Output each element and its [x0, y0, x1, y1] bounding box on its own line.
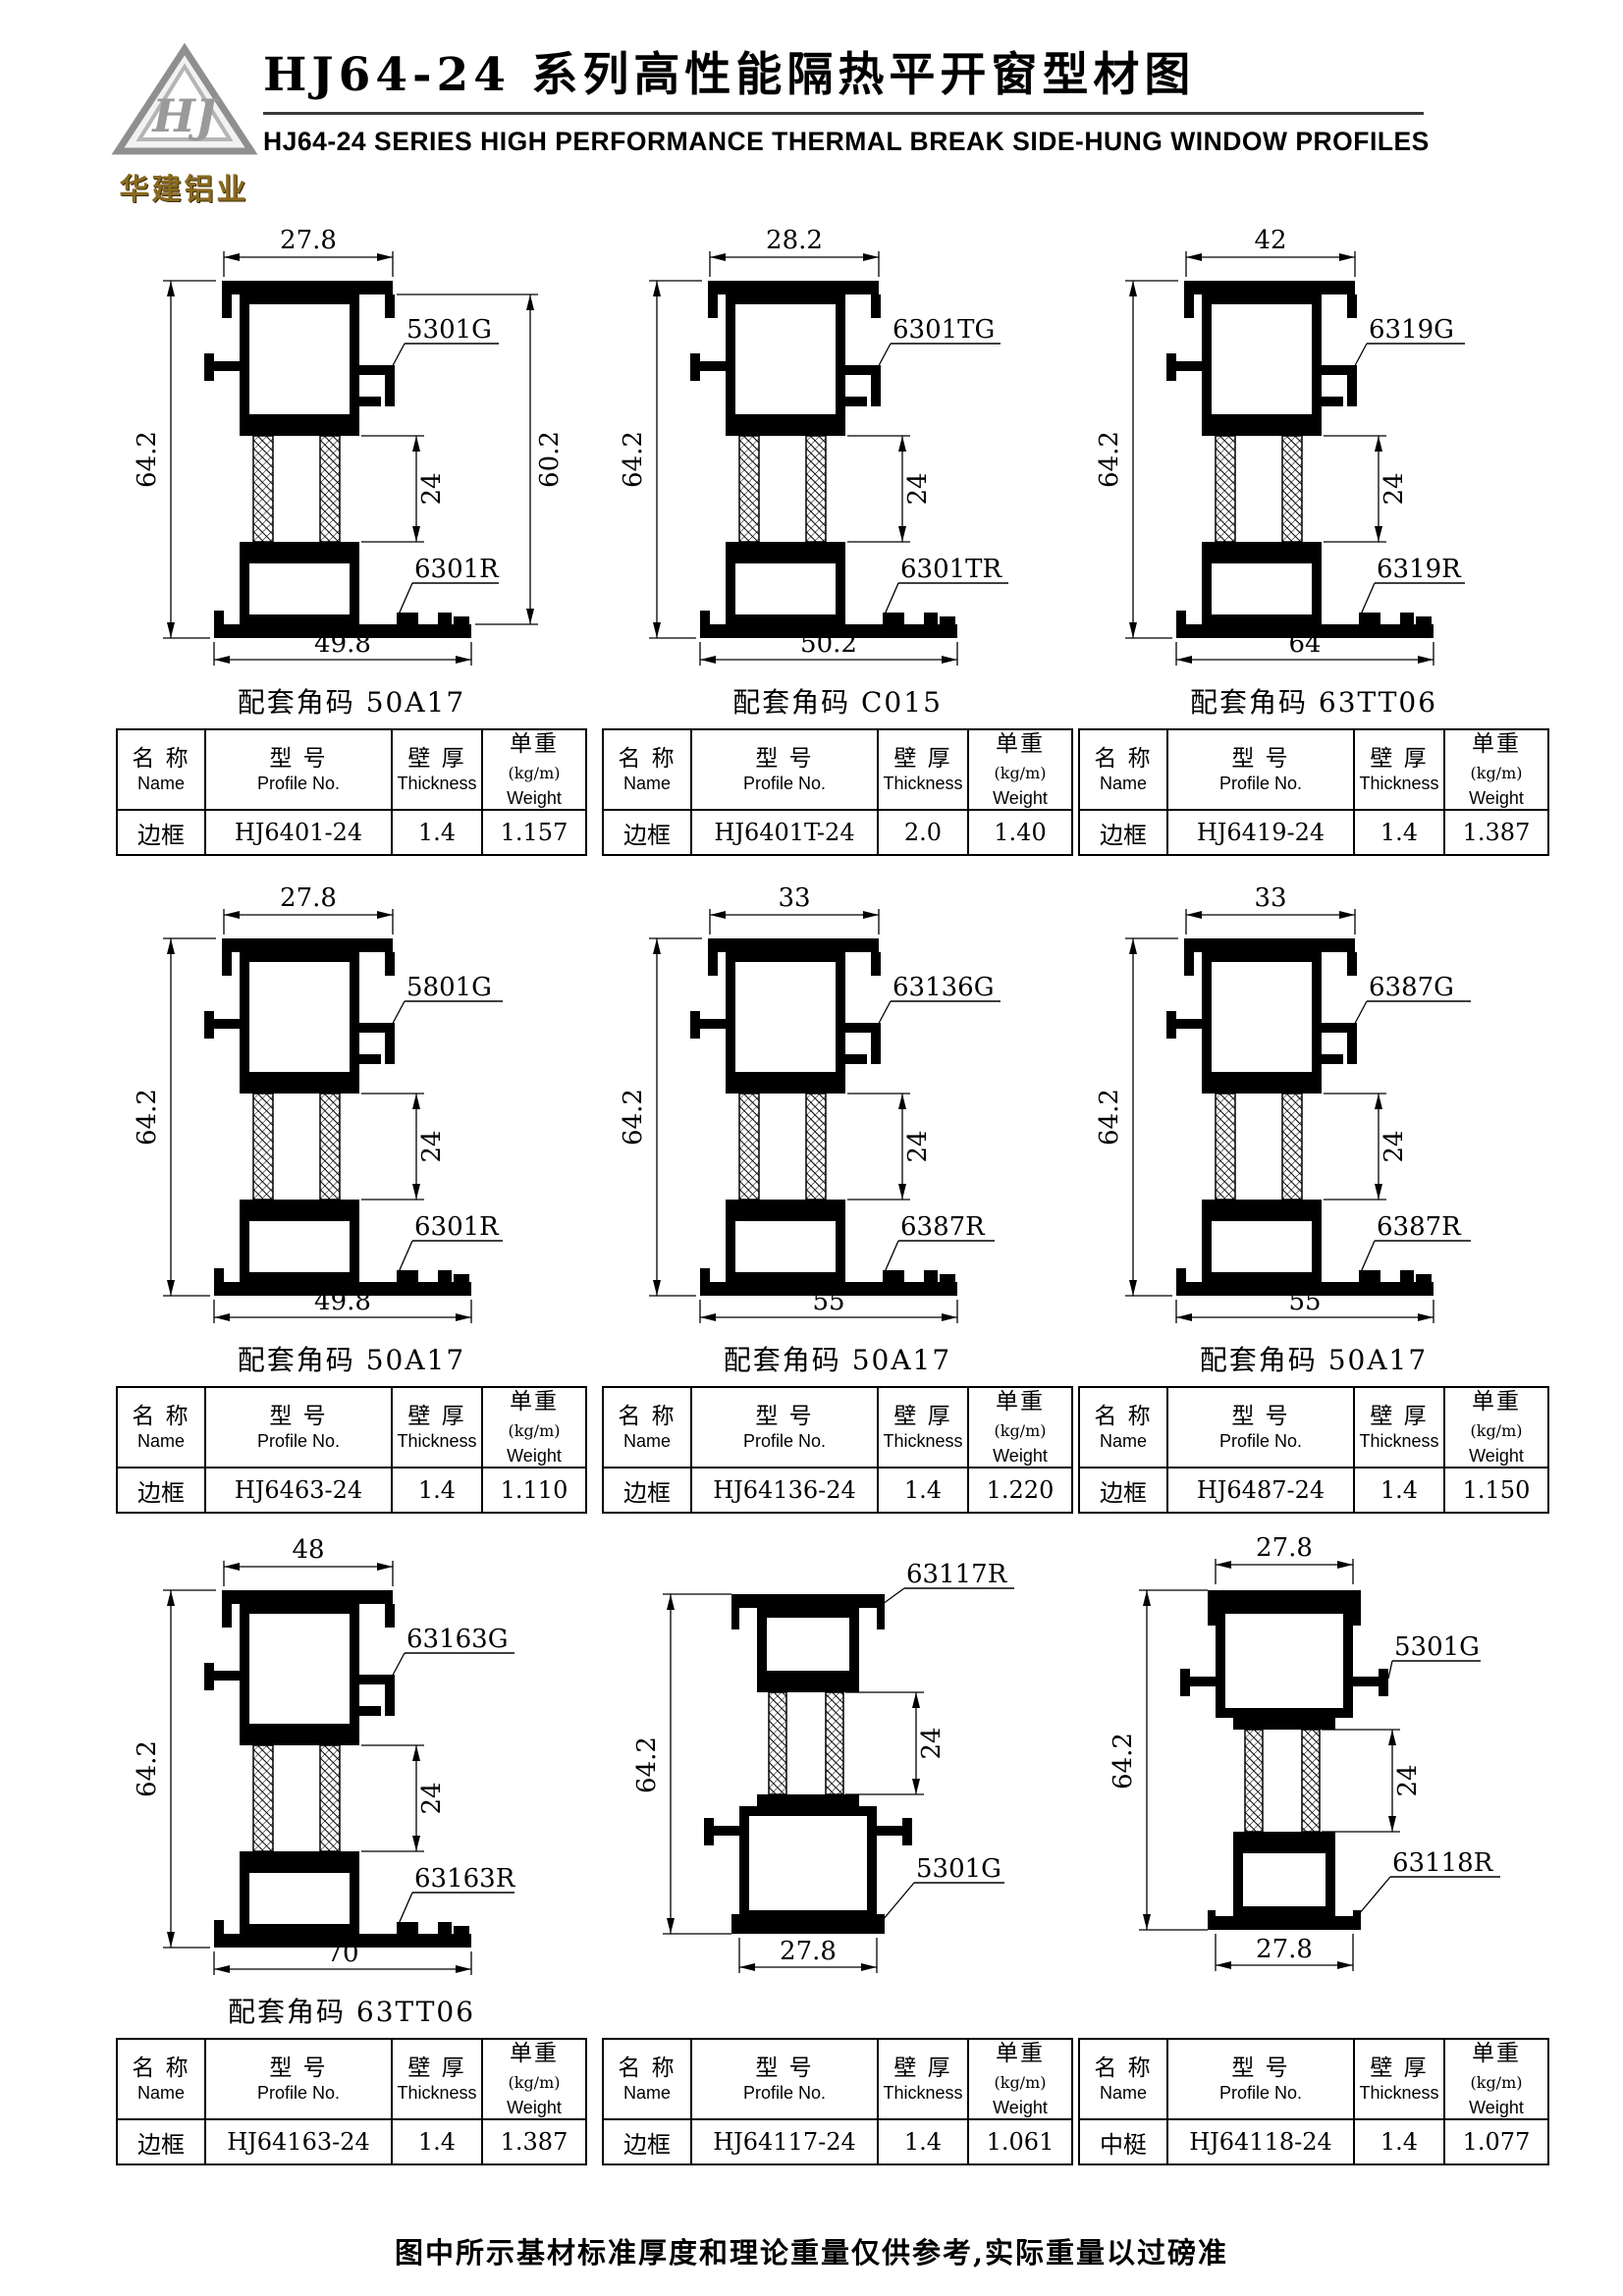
cell-model: HJ64118-24	[1167, 2119, 1354, 2164]
profile-drawing: 28.2 64.2 24 50.2 6301TG 6301TR	[592, 222, 1083, 683]
col-header-model: 型 号Profile No.	[1167, 1387, 1354, 1468]
cell-thickness: 1.4	[392, 2119, 482, 2164]
document-page: HJ 华建铝业 HJ64-24 系列高性能隔热平开窗型材图 HJ64-24 SE…	[0, 0, 1623, 2296]
col-header-weight: 单重(kg/m)Weight	[1444, 729, 1548, 810]
col-header-thickness: 壁 厚Thickness	[392, 1387, 482, 1468]
dim-left: 64.2	[1109, 1733, 1138, 1789]
profile-drawing: 27.8 64.2 60.2 24 49.8 5301G 6301R	[106, 222, 597, 683]
corner-code-caption: 配套角码 63TT06	[1063, 683, 1564, 722]
label-upper: 5301G	[406, 315, 492, 345]
cell-weight: 1.387	[482, 2119, 586, 2164]
cell-name: 边框	[603, 810, 691, 855]
dim-bottom: 50.2	[800, 629, 857, 659]
col-header-weight: 单重(kg/m)Weight	[968, 2039, 1072, 2119]
col-header-model: 型 号Profile No.	[1167, 729, 1354, 810]
col-header-weight: 单重(kg/m)Weight	[482, 729, 586, 810]
dim-left: 64.2	[1095, 1089, 1124, 1146]
dim-left: 64.2	[133, 431, 162, 488]
cell-model: HJ6401T-24	[691, 810, 878, 855]
company-logo: HJ 华建铝业	[93, 41, 275, 208]
dim-top: 42	[1254, 226, 1286, 255]
label-upper: 5801G	[406, 973, 492, 1002]
col-header-thickness: 壁 厚Thickness	[1354, 1387, 1444, 1468]
corner-code-caption: 配套角码 63TT06	[101, 1993, 602, 2032]
cell-model: HJ64117-24	[691, 2119, 878, 2164]
dim-left: 64.2	[632, 1736, 662, 1793]
col-header-weight: 单重(kg/m)Weight	[482, 1387, 586, 1468]
col-header-thickness: 壁 厚Thickness	[878, 1387, 968, 1468]
spec-table: 名 称Name 型 号Profile No. 壁 厚Thickness 单重(k…	[1078, 728, 1549, 856]
dim-bottom: 49.8	[314, 629, 371, 659]
table-row: 边框 HJ64117-24 1.4 1.061	[603, 2119, 1072, 2164]
cell-name: 边框	[117, 2119, 205, 2164]
spec-table: 名 称Name 型 号Profile No. 壁 厚Thickness 单重(k…	[602, 1386, 1073, 1514]
label-upper: 5301G	[1394, 1632, 1480, 1662]
logo-triangle-icon: HJ	[106, 41, 263, 159]
col-header-name: 名 称Name	[603, 1387, 691, 1468]
col-header-thickness: 壁 厚Thickness	[1354, 2039, 1444, 2119]
cell-thickness: 1.4	[1354, 810, 1444, 855]
dim-mid: 24	[417, 472, 447, 505]
cell-weight: 1.387	[1444, 810, 1548, 855]
col-header-weight: 单重(kg/m)Weight	[968, 729, 1072, 810]
label-lower: 6319R	[1377, 555, 1462, 584]
header: HJ64-24 系列高性能隔热平开窗型材图 HJ64-24 SERIES HIG…	[263, 49, 1424, 157]
label-upper: 63117R	[906, 1560, 1008, 1589]
dim-left: 64.2	[619, 431, 648, 488]
profile-drawing: 42 64.2 24 64 6319G 6319R	[1068, 222, 1559, 683]
dim-bottom: 27.8	[780, 1937, 837, 1966]
col-header-thickness: 壁 厚Thickness	[392, 2039, 482, 2119]
cell-weight: 1.40	[968, 810, 1072, 855]
dim-top: 33	[778, 883, 810, 913]
dim-top: 33	[1254, 883, 1286, 913]
dim-mid: 24	[1393, 1764, 1423, 1796]
corner-code-caption: 配套角码 50A17	[101, 1341, 602, 1380]
col-header-model: 型 号Profile No.	[205, 2039, 392, 2119]
cell-name: 边框	[117, 810, 205, 855]
dim-bottom: 49.8	[314, 1287, 371, 1316]
label-upper: 6301TG	[893, 315, 995, 345]
company-name: 华建铝业	[93, 165, 275, 208]
col-header-thickness: 壁 厚Thickness	[878, 729, 968, 810]
table-row: 边框 HJ6401T-24 2.0 1.40	[603, 810, 1072, 855]
col-header-weight: 单重(kg/m)Weight	[482, 2039, 586, 2119]
cell-model: HJ64163-24	[205, 2119, 392, 2164]
profile-card: 48 64.2 24 70 63163G 63163R 配套角码 63TT06	[101, 1531, 602, 2165]
label-lower: 63163R	[414, 1864, 516, 1894]
cell-weight: 1.220	[968, 1468, 1072, 1513]
table-row: 边框 HJ6463-24 1.4 1.110	[117, 1468, 586, 1513]
col-header-thickness: 壁 厚Thickness	[392, 729, 482, 810]
spec-table: 名 称Name 型 号Profile No. 壁 厚Thickness 单重(k…	[116, 728, 587, 856]
label-lower: 5301G	[916, 1854, 1001, 1884]
profile-drawing: 27.8 64.2 24 49.8 5801G 6301R	[106, 880, 597, 1341]
part-labels: 6387G 6387R	[1351, 973, 1471, 1272]
profile-card: 33 64.2 24 55 6387G 6387R 配套角码 50A17 名	[1063, 880, 1564, 1514]
col-header-model: 型 号Profile No.	[691, 729, 878, 810]
label-lower: 6301R	[414, 1212, 500, 1242]
dim-top: 27.8	[1256, 1533, 1313, 1563]
cell-model: HJ6463-24	[205, 1468, 392, 1513]
part-labels: 5801G 6301R	[389, 973, 503, 1272]
profile-drawing: 33 64.2 24 55 6387G 6387R	[1068, 880, 1559, 1341]
col-header-name: 名 称Name	[1079, 1387, 1167, 1468]
col-header-name: 名 称Name	[117, 2039, 205, 2119]
table-row: 边框 HJ6487-24 1.4 1.150	[1079, 1468, 1548, 1513]
part-labels: 6319G 6319R	[1351, 315, 1465, 614]
spec-table: 名 称Name 型 号Profile No. 壁 厚Thickness 单重(k…	[602, 2038, 1073, 2165]
dim-top: 27.8	[280, 883, 337, 913]
profile-drawing: 27.8 64.2 24 27.8 5301G 63118R	[1068, 1531, 1559, 1993]
cell-weight: 1.110	[482, 1468, 586, 1513]
col-header-name: 名 称Name	[603, 729, 691, 810]
dim-mid: 24	[903, 472, 933, 505]
col-header-model: 型 号Profile No.	[1167, 2039, 1354, 2119]
spec-table: 名 称Name 型 号Profile No. 壁 厚Thickness 单重(k…	[116, 2038, 587, 2165]
profile-drawing: 64.2 24 27.8 63117R 5301G	[592, 1531, 1083, 1993]
col-header-thickness: 壁 厚Thickness	[878, 2039, 968, 2119]
profile-card: 27.8 64.2 24 27.8 5301G 63118R 名 称Nam	[1063, 1531, 1564, 2165]
profile-drawing: 48 64.2 24 70 63163G 63163R	[106, 1531, 597, 1993]
spec-table: 名 称Name 型 号Profile No. 壁 厚Thickness 单重(k…	[116, 1386, 587, 1514]
dim-top: 28.2	[766, 226, 823, 255]
profile-card: 42 64.2 24 64 6319G 6319R 配套角码 63TT06	[1063, 222, 1564, 856]
cell-thickness: 1.4	[392, 1468, 482, 1513]
cell-name: 边框	[1079, 810, 1167, 855]
cell-name: 边框	[603, 1468, 691, 1513]
col-header-name: 名 称Name	[117, 1387, 205, 1468]
col-header-name: 名 称Name	[117, 729, 205, 810]
cell-model: HJ6419-24	[1167, 810, 1354, 855]
profile-card: 27.8 64.2 24 49.8 5801G 6301R 配套角码 50A17	[101, 880, 602, 1514]
label-upper: 63163G	[406, 1625, 508, 1654]
spec-table: 名 称Name 型 号Profile No. 壁 厚Thickness 单重(k…	[1078, 1386, 1549, 1514]
spec-table: 名 称Name 型 号Profile No. 壁 厚Thickness 单重(k…	[602, 728, 1073, 856]
profile-card: 27.8 64.2 60.2 24 49.8 5301G 6301R	[101, 222, 602, 856]
cell-thickness: 1.4	[1354, 2119, 1444, 2164]
label-upper: 63136G	[893, 973, 994, 1002]
footer-note: 图中所示基材标准厚度和理论重量仅供参考,实际重量以过磅准	[0, 2230, 1623, 2271]
table-row: 边框 HJ6401-24 1.4 1.157	[117, 810, 586, 855]
profile-card: 28.2 64.2 24 50.2 6301TG 6301TR 配套角码 C01…	[587, 222, 1088, 856]
dim-left: 64.2	[1095, 431, 1124, 488]
dim-mid: 24	[917, 1727, 947, 1759]
col-header-model: 型 号Profile No.	[691, 1387, 878, 1468]
label-lower: 6301R	[414, 555, 500, 584]
page-subtitle: HJ64-24 SERIES HIGH PERFORMANCE THERMAL …	[263, 127, 1424, 157]
corner-code-caption: 配套角码 C015	[587, 683, 1088, 722]
dim-left: 64.2	[619, 1089, 648, 1146]
col-header-weight: 单重(kg/m)Weight	[1444, 1387, 1548, 1468]
cell-model: HJ6487-24	[1167, 1468, 1354, 1513]
dim-mid: 24	[1380, 472, 1409, 505]
dim-left: 64.2	[133, 1740, 162, 1797]
corner-code-caption: 配套角码 50A17	[587, 1341, 1088, 1380]
dim-mid: 24	[1380, 1130, 1409, 1162]
col-header-name: 名 称Name	[603, 2039, 691, 2119]
profile-card: 64.2 24 27.8 63117R 5301G 名 称Name 型 号Pro…	[587, 1531, 1088, 2165]
table-row: 边框 HJ6419-24 1.4 1.387	[1079, 810, 1548, 855]
dim-bottom: 64	[1288, 629, 1321, 659]
cell-thickness: 1.4	[878, 1468, 968, 1513]
table-row: 边框 HJ64163-24 1.4 1.387	[117, 2119, 586, 2164]
cell-thickness: 2.0	[878, 810, 968, 855]
cell-weight: 1.150	[1444, 1468, 1548, 1513]
label-upper: 6319G	[1369, 315, 1454, 345]
dim-bottom: 27.8	[1256, 1935, 1313, 1964]
part-labels: 63136G 6387R	[875, 973, 1001, 1272]
col-header-model: 型 号Profile No.	[205, 1387, 392, 1468]
cell-model: HJ64136-24	[691, 1468, 878, 1513]
col-header-name: 名 称Name	[1079, 729, 1167, 810]
dim-bottom: 70	[326, 1939, 358, 1968]
label-lower: 63118R	[1392, 1848, 1494, 1878]
title-divider	[263, 112, 1424, 115]
cell-name: 中梃	[1079, 2119, 1167, 2164]
spec-table: 名 称Name 型 号Profile No. 壁 厚Thickness 单重(k…	[1078, 2038, 1549, 2165]
part-labels: 63163G 63163R	[389, 1625, 516, 1924]
col-header-model: 型 号Profile No.	[691, 2039, 878, 2119]
cell-name: 边框	[603, 2119, 691, 2164]
col-header-weight: 单重(kg/m)Weight	[1444, 2039, 1548, 2119]
table-row: 中梃 HJ64118-24 1.4 1.077	[1079, 2119, 1548, 2164]
cell-weight: 1.157	[482, 810, 586, 855]
corner-code-caption: 配套角码 50A17	[1063, 1341, 1564, 1380]
dim-left: 64.2	[133, 1089, 162, 1146]
col-header-weight: 单重(kg/m)Weight	[968, 1387, 1072, 1468]
label-lower: 6387R	[1377, 1212, 1462, 1242]
col-header-model: 型 号Profile No.	[205, 729, 392, 810]
profile-drawing: 33 64.2 24 55 63136G 6387R	[592, 880, 1083, 1341]
cell-thickness: 1.4	[1354, 1468, 1444, 1513]
col-header-name: 名 称Name	[1079, 2039, 1167, 2119]
cell-weight: 1.061	[968, 2119, 1072, 2164]
cell-name: 边框	[1079, 1468, 1167, 1513]
logo-monogram: HJ	[150, 89, 219, 142]
dim-mid: 24	[903, 1130, 933, 1162]
col-header-thickness: 壁 厚Thickness	[1354, 729, 1444, 810]
part-labels: 5301G 6301R	[389, 315, 500, 614]
part-labels: 63117R 5301G	[883, 1560, 1014, 1920]
dim-mid: 24	[417, 1782, 447, 1814]
label-lower: 6301TR	[900, 555, 1003, 584]
part-labels: 6301TG 6301TR	[875, 315, 1008, 614]
cell-thickness: 1.4	[878, 2119, 968, 2164]
cell-weight: 1.077	[1444, 2119, 1548, 2164]
cell-model: HJ6401-24	[205, 810, 392, 855]
dim-right: 60.2	[535, 431, 565, 488]
cell-thickness: 1.4	[392, 810, 482, 855]
page-title: HJ64-24 系列高性能隔热平开窗型材图	[263, 49, 1424, 102]
profile-card: 33 64.2 24 55 63136G 6387R 配套角码 50A17	[587, 880, 1088, 1514]
label-lower: 6387R	[900, 1212, 986, 1242]
dim-top: 27.8	[280, 226, 337, 255]
corner-code-caption: 配套角码 50A17	[101, 683, 602, 722]
cell-name: 边框	[117, 1468, 205, 1513]
dim-mid: 24	[417, 1130, 447, 1162]
dim-bottom: 55	[1288, 1287, 1321, 1316]
label-upper: 6387G	[1369, 973, 1454, 1002]
corner-code-caption	[587, 1993, 1088, 2032]
table-row: 边框 HJ64136-24 1.4 1.220	[603, 1468, 1072, 1513]
corner-code-caption	[1063, 1993, 1564, 2032]
dim-bottom: 55	[812, 1287, 844, 1316]
dim-top: 48	[292, 1535, 324, 1565]
